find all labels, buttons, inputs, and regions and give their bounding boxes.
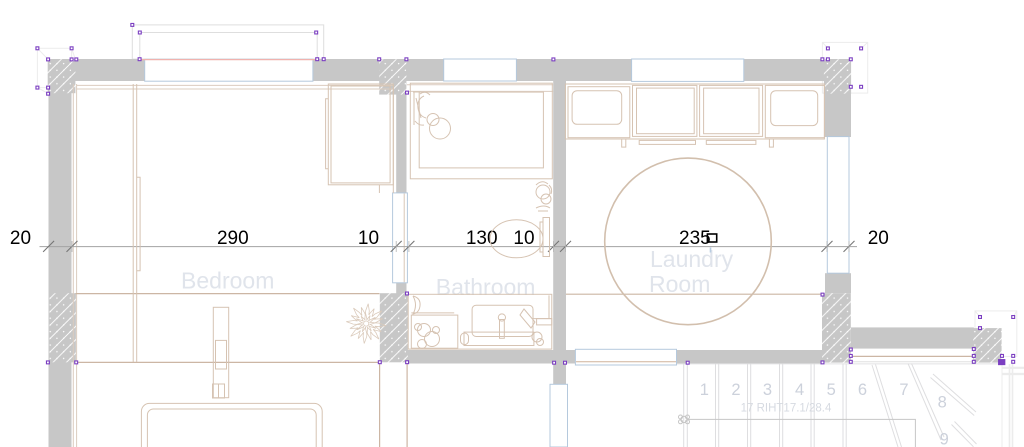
- svg-text:Bedroom: Bedroom: [181, 268, 274, 294]
- svg-text:10: 10: [358, 228, 379, 249]
- svg-text:4: 4: [795, 381, 804, 399]
- svg-text:5: 5: [827, 381, 836, 399]
- svg-text:235: 235: [679, 228, 711, 249]
- svg-text:20: 20: [10, 228, 31, 249]
- svg-text:6: 6: [858, 381, 867, 399]
- svg-text:Room: Room: [649, 271, 710, 297]
- svg-text:290: 290: [217, 228, 249, 249]
- svg-text:3: 3: [763, 381, 772, 399]
- svg-text:10: 10: [513, 228, 534, 249]
- svg-text:Laundry: Laundry: [650, 246, 734, 272]
- svg-text:2: 2: [731, 381, 740, 399]
- svg-text:130: 130: [466, 228, 498, 249]
- svg-text:17 RIHT17.1/28.4: 17 RIHT17.1/28.4: [741, 403, 832, 415]
- svg-text:1: 1: [700, 381, 709, 399]
- svg-text:9: 9: [940, 430, 949, 447]
- svg-text:7: 7: [899, 381, 908, 399]
- svg-text:20: 20: [868, 228, 889, 249]
- svg-text:8: 8: [938, 394, 947, 412]
- svg-text:Bathroom: Bathroom: [436, 274, 536, 300]
